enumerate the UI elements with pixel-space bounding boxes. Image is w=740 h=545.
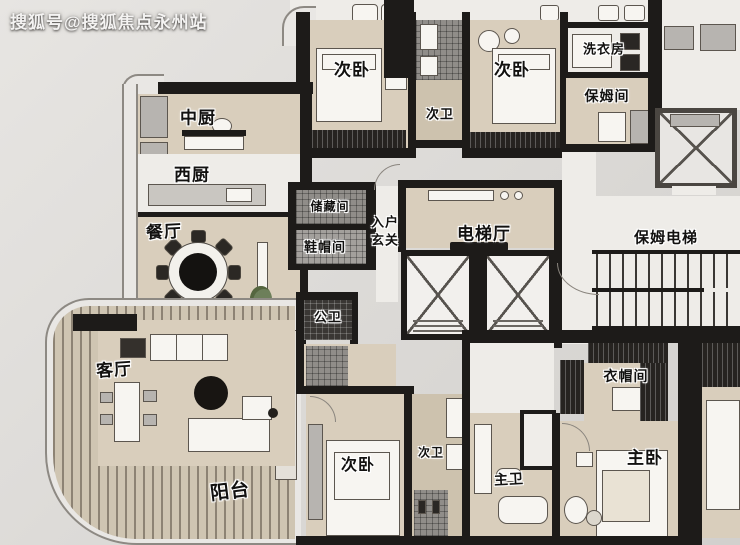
chair [228, 265, 241, 280]
bed-blanket [602, 470, 650, 522]
wall-segment [296, 292, 358, 300]
wall-segment [398, 180, 562, 188]
wall-segment [398, 180, 406, 252]
shower-stall [520, 410, 556, 470]
wardrobe-hatch [312, 130, 406, 150]
lamp-icon [500, 191, 509, 200]
room-label-storage: 储藏间 [310, 198, 349, 215]
sink-cabinet [420, 24, 438, 50]
room-label-shoe-hat: 鞋帽间 [304, 237, 346, 256]
fixture [432, 500, 440, 514]
ac-unit-icon [624, 5, 645, 21]
room-label-dining: 餐厅 [145, 217, 182, 244]
wardrobe-strip [308, 424, 323, 520]
dining-table-top [179, 253, 217, 291]
cabinet [700, 24, 736, 51]
room-label-bath2-bottom: 次卫 [418, 444, 444, 461]
room-label-laundry: 洗衣房 [583, 39, 625, 58]
room-label-master-bedroom: 主卧 [627, 444, 663, 469]
bathtub [498, 496, 548, 524]
room-label-balcony: 阳台 [208, 474, 251, 506]
room-label-elevator-hall: 电梯厅 [457, 220, 511, 245]
wall-segment [462, 342, 470, 538]
floorplan-image: 次卧 次卧 次卫 洗衣房 保姆间 中厨 西厨 餐厅 储藏间 鞋帽间 入户 玄关 … [0, 0, 740, 545]
wall-segment [462, 148, 566, 158]
room-label-bedroom2-top-right: 次卧 [494, 56, 530, 81]
fridge [140, 96, 168, 138]
work-table [114, 382, 140, 442]
sideboard-divider [176, 334, 177, 361]
floor-master-bath-entry [470, 343, 554, 413]
elevator-door-gap [672, 186, 716, 195]
room-label-living: 客厅 [95, 354, 133, 381]
armchair [242, 396, 272, 420]
watermark-text: 搜狐号@搜狐焦点永州站 [10, 8, 208, 33]
lamp-icon [514, 191, 523, 200]
console-table [428, 190, 494, 201]
stool [564, 496, 588, 524]
room-label-nanny-room: 保姆间 [585, 86, 630, 106]
wall-segment [296, 148, 416, 158]
room-label-nanny-elevator: 保姆电梯 [634, 227, 698, 248]
coffee-table [194, 376, 228, 410]
room-label-cloakroom: 衣帽间 [604, 366, 649, 386]
room-label-western-kitchen: 西厨 [174, 161, 210, 186]
room-label-public-bath: 公卫 [314, 307, 342, 326]
wall-segment [296, 386, 414, 394]
sofa [188, 418, 270, 452]
sideboard-divider [202, 334, 203, 361]
stool [504, 28, 520, 44]
ac-unit-icon [598, 5, 619, 21]
wall-segment [408, 12, 416, 148]
chair [100, 392, 113, 403]
room-label-chinese-kitchen: 中厨 [180, 104, 216, 129]
toilet [420, 56, 438, 76]
stairs [596, 254, 736, 288]
room-label-bedroom2-bottom: 次卧 [341, 451, 375, 475]
room-label-entry-line2: 玄关 [371, 230, 399, 249]
wall-segment [296, 536, 686, 545]
outer-wall-left [122, 84, 138, 316]
wall-segment [73, 314, 137, 331]
wall-segment [158, 82, 313, 94]
island-cabinet [184, 136, 244, 150]
wall-segment [471, 250, 485, 340]
room-label-entry-line1: 入户 [371, 212, 399, 231]
floor-service-corridor [662, 0, 740, 110]
nightstand [576, 452, 593, 467]
stairs [596, 292, 736, 326]
room-label-master-bath: 主卫 [493, 468, 524, 490]
wall-segment [404, 388, 412, 538]
stool [586, 510, 602, 526]
wall-segment [560, 144, 660, 152]
room-label-bath2-top: 次卫 [426, 104, 454, 123]
wall-segment [462, 12, 470, 152]
wall-segment [678, 330, 702, 545]
room-label-bedroom2-top-left: 次卧 [334, 56, 370, 81]
ac-unit-icon [540, 5, 559, 21]
elevator-vent [413, 320, 463, 332]
chair [143, 414, 157, 426]
wardrobe-hatch [702, 343, 740, 387]
counter-sink [226, 188, 252, 202]
chair [100, 414, 113, 425]
floor-corridor [562, 152, 596, 344]
wall-segment [552, 413, 560, 538]
entry-door-arc [374, 164, 400, 190]
fixture [418, 500, 426, 514]
wall-segment [408, 140, 470, 148]
floor-lamp-icon [268, 408, 278, 418]
sideboard [150, 334, 228, 361]
chair [143, 390, 157, 402]
neighbor-bed [706, 400, 740, 510]
vanity [474, 424, 492, 494]
nanny-bed [598, 112, 626, 142]
elevator-panel [670, 114, 720, 127]
cabinet [664, 26, 694, 50]
shower-tile [306, 346, 348, 386]
wardrobe-hatch [560, 360, 584, 414]
wardrobe-hatch [588, 343, 668, 363]
